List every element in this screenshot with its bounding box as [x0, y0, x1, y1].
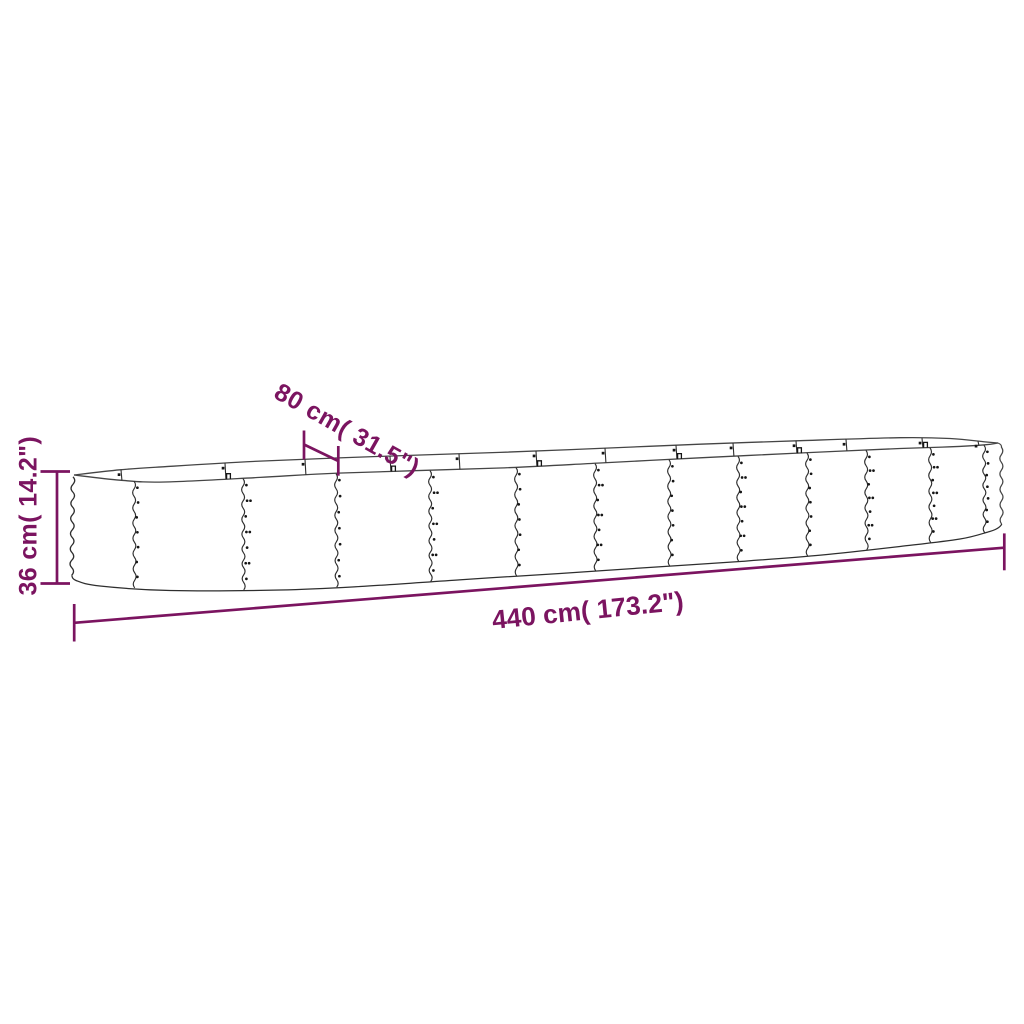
svg-text:36 cm( 14.2"): 36 cm( 14.2") — [15, 436, 43, 596]
